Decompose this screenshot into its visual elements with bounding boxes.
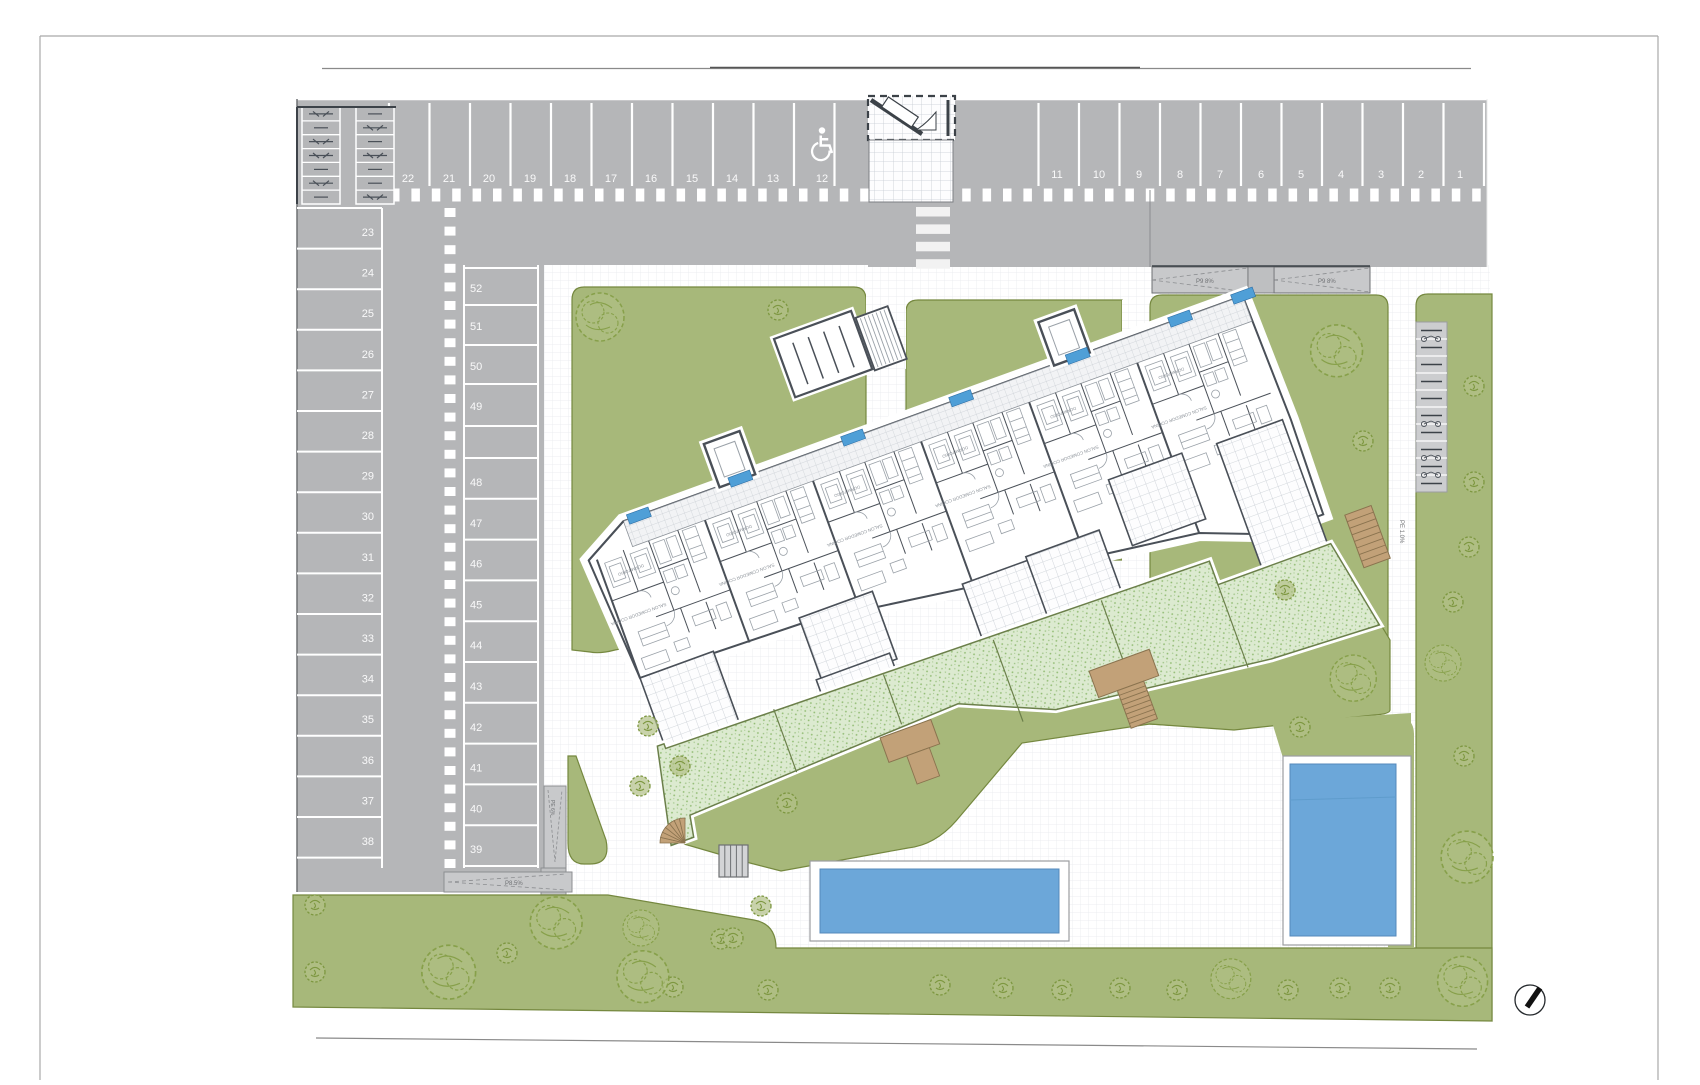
svg-text:P9 8%: P9 8% — [1318, 279, 1336, 285]
svg-text:34: 34 — [362, 674, 374, 686]
svg-text:46: 46 — [470, 559, 482, 571]
svg-text:2: 2 — [1418, 169, 1424, 181]
svg-text:16: 16 — [645, 173, 657, 185]
svg-text:44: 44 — [470, 640, 482, 652]
svg-text:10: 10 — [1093, 169, 1105, 181]
svg-text:5: 5 — [1298, 169, 1304, 181]
svg-text:36: 36 — [362, 755, 374, 767]
svg-text:47: 47 — [470, 518, 482, 530]
svg-text:31: 31 — [362, 552, 374, 564]
svg-text:27: 27 — [362, 389, 374, 401]
svg-text:41: 41 — [470, 763, 482, 775]
svg-text:3: 3 — [1378, 169, 1384, 181]
svg-text:9: 9 — [1136, 169, 1142, 181]
svg-text:35: 35 — [362, 714, 374, 726]
svg-text:42: 42 — [470, 722, 482, 734]
svg-text:32: 32 — [362, 592, 374, 604]
svg-text:43: 43 — [470, 681, 482, 693]
svg-text:40: 40 — [470, 803, 482, 815]
svg-text:52: 52 — [470, 283, 482, 295]
svg-text:20: 20 — [483, 173, 495, 185]
svg-text:PE 1.0%: PE 1.0% — [1398, 520, 1404, 544]
svg-text:39: 39 — [470, 844, 482, 856]
svg-text:29: 29 — [362, 471, 374, 483]
svg-text:6: 6 — [1258, 169, 1264, 181]
svg-text:11: 11 — [1051, 169, 1062, 181]
svg-text:50: 50 — [470, 361, 482, 373]
svg-text:30: 30 — [362, 511, 374, 523]
svg-text:14: 14 — [726, 173, 738, 185]
svg-text:4: 4 — [1338, 169, 1344, 181]
svg-text:22: 22 — [402, 173, 414, 185]
svg-text:18: 18 — [564, 173, 576, 185]
svg-text:PE 6%: PE 6% — [549, 800, 555, 816]
svg-text:45: 45 — [470, 599, 482, 611]
svg-text:25: 25 — [362, 308, 374, 320]
svg-text:26: 26 — [362, 349, 374, 361]
svg-text:19: 19 — [524, 173, 536, 185]
svg-text:13: 13 — [767, 173, 779, 185]
svg-text:33: 33 — [362, 633, 374, 645]
svg-text:38: 38 — [362, 836, 374, 848]
svg-text:24: 24 — [362, 268, 374, 280]
svg-text:17: 17 — [605, 173, 617, 185]
svg-text:49: 49 — [470, 401, 482, 413]
svg-text:23: 23 — [362, 227, 374, 239]
svg-text:15: 15 — [686, 173, 698, 185]
svg-text:P8.5%: P8.5% — [505, 881, 523, 887]
svg-text:21: 21 — [443, 173, 455, 185]
svg-text:51: 51 — [470, 321, 482, 333]
svg-text:48: 48 — [470, 477, 482, 489]
svg-text:7: 7 — [1217, 169, 1223, 181]
svg-text:12: 12 — [816, 173, 828, 185]
svg-text:37: 37 — [362, 795, 374, 807]
svg-text:28: 28 — [362, 430, 374, 442]
svg-text:8: 8 — [1177, 169, 1183, 181]
svg-text:1: 1 — [1457, 169, 1463, 181]
svg-text:P9 8%: P9 8% — [1196, 279, 1214, 285]
